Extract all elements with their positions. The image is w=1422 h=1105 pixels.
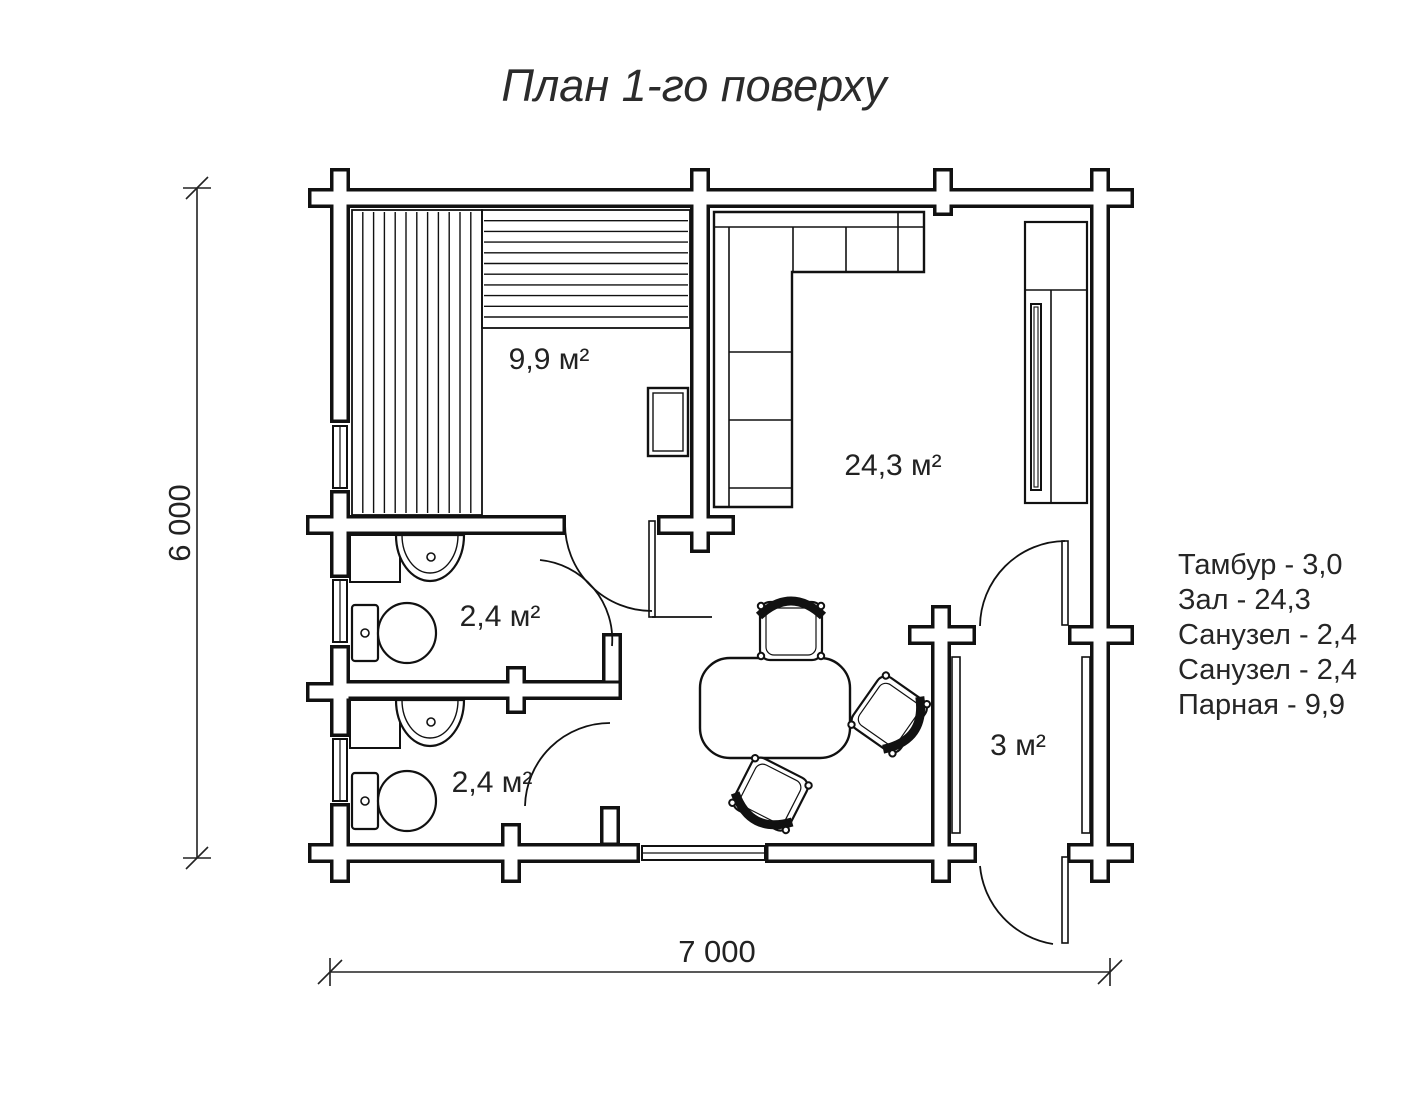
tambour-inner-door-leaf: [1062, 541, 1068, 625]
window-bottom: [642, 846, 765, 860]
bath2-door-arc: [525, 723, 610, 806]
bath1-fixtures: [350, 535, 464, 663]
window-bath-2: [333, 739, 347, 801]
chair-bottom: [727, 753, 813, 836]
sauna-stove: [648, 388, 688, 456]
bath1-counter: [350, 535, 400, 582]
tambour-inner-door-arc: [980, 541, 1065, 626]
legend-item-sanuzel2: Санузел - 2,4: [1178, 653, 1357, 688]
room-label-tambur: 3 м²: [990, 729, 1046, 762]
legend-item-tambur: Тамбур - 3,0: [1178, 548, 1357, 583]
window-bath-1: [333, 580, 347, 642]
wardrobe: [1025, 222, 1087, 503]
legend-item-parnaya: Парная - 9,9: [1178, 688, 1357, 723]
entry-door-leaf: [1062, 857, 1068, 943]
page-title: План 1-го поверху: [501, 60, 886, 112]
window-sauna: [333, 426, 347, 488]
room-legend: Тамбур - 3,0 Зал - 24,3 Санузел - 2,4 Са…: [1178, 548, 1357, 723]
sauna-door-leaf: [649, 521, 655, 617]
bath2-toilet-bowl: [378, 771, 436, 831]
bath1-toilet-bowl: [378, 603, 436, 663]
sauna-bench-left: [352, 210, 482, 515]
legend-item-zal: Зал - 24,3: [1178, 583, 1357, 618]
room-label-parnaya: 9,9 м²: [509, 343, 590, 376]
entry-door-arc: [980, 866, 1053, 944]
room-label-sanuzel1: 2,4 м²: [460, 600, 541, 633]
chair-right: [846, 671, 932, 759]
dimension-height-label: 6 000: [162, 484, 197, 562]
room-label-zal: 24,3 м²: [844, 449, 941, 482]
bath2-counter: [350, 700, 400, 748]
sauna-bench-top: [482, 210, 690, 328]
bath2-fixtures: [350, 700, 464, 831]
chair-top: [758, 601, 824, 660]
bath1-door-arc: [540, 560, 612, 646]
sauna-door-arc: [565, 524, 652, 611]
legend-item-sanuzel1: Санузел - 2,4: [1178, 618, 1357, 653]
room-label-sanuzel2: 2,4 м²: [452, 766, 533, 799]
dimension-width-label: 7 000: [678, 934, 756, 969]
table: [700, 658, 850, 758]
